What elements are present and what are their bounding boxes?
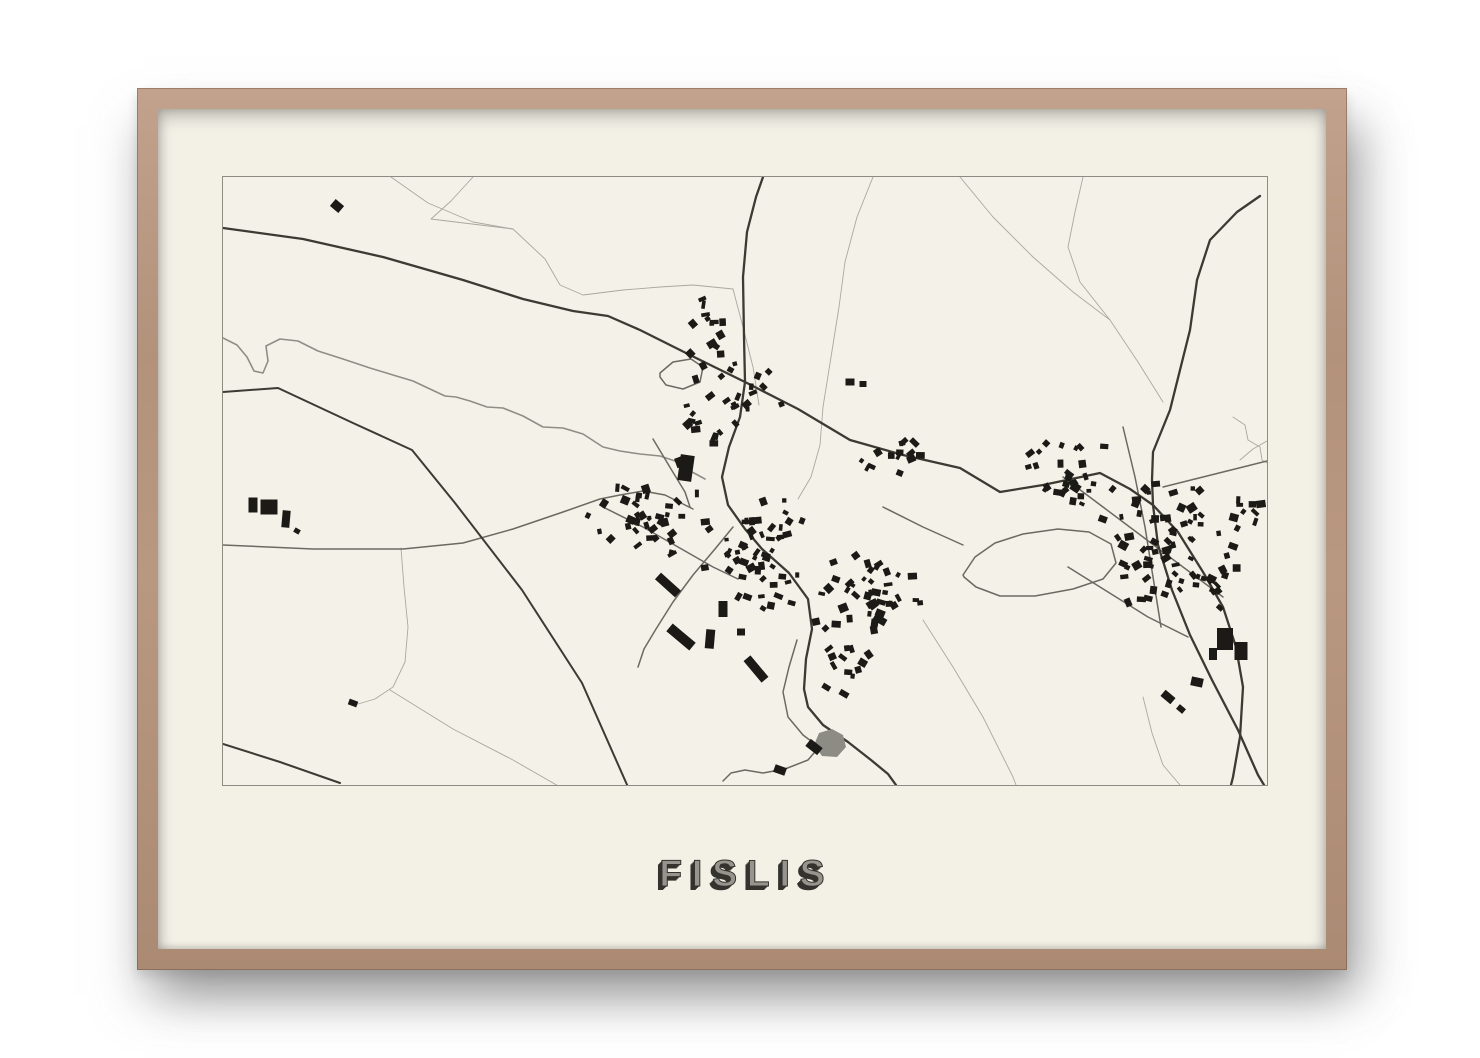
town-map (223, 177, 1267, 785)
poster-mat: FISLIS (158, 109, 1326, 949)
poster-title: FISLIS (158, 853, 1326, 895)
picture-frame: FISLIS (137, 88, 1347, 970)
wall: FISLIS (0, 0, 1480, 1058)
